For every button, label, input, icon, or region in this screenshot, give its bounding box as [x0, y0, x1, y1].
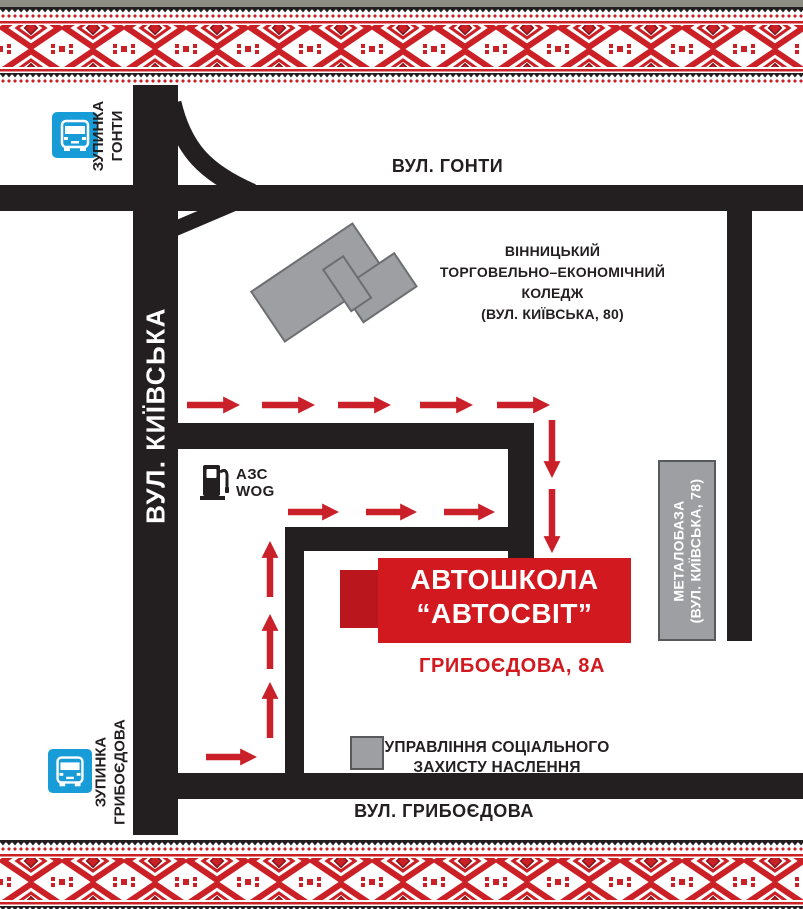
college-label-line: ТОРГОВЕЛЬНО–ЕКОНОМІЧНИЙ	[400, 262, 705, 283]
street-label-honty: ВУЛ. ГОНТИ	[340, 156, 555, 177]
college-label-line: (ВУЛ. КИЇВСЬКА, 80)	[400, 304, 705, 325]
gas-pump-icon	[200, 462, 230, 502]
college-label: ВІННИЦЬКИЙ ТОРГОВЕЛЬНО–ЕКОНОМІЧНИЙ КОЛЕД…	[400, 241, 705, 325]
metal-base-label: МЕТАЛОБАЗА (ВУЛ. КИЇВСЬКА, 78)	[667, 460, 707, 641]
bus-stop-label-line: ГРИБОЄДОВА	[111, 685, 130, 860]
road-right-side	[727, 211, 752, 641]
bus-stop-label-hryboiedova: ЗУПИНКА ГРИБОЄДОВА	[90, 685, 132, 860]
road-middle-horizontal	[178, 423, 534, 449]
bus-stop-icon	[48, 749, 92, 793]
embroidery-pattern	[0, 7, 803, 85]
driving-school-name-line: АВТОШКОЛА	[378, 563, 631, 597]
driving-school-address: ГРИБОЄДОВА, 8А	[367, 655, 657, 678]
metal-base-building: МЕТАЛОБАЗА (ВУЛ. КИЇВСЬКА, 78)	[658, 460, 716, 641]
route-map: ВУЛ. ГОНТИ ВУЛ. КИЇВСЬКА ВУЛ. ГРИБОЄДОВА…	[0, 0, 803, 909]
road-block-horizontal	[285, 527, 534, 551]
gas-station-label: АЗС WOG	[236, 466, 275, 500]
bus-stop-label-line: ЗУПИНКА	[92, 685, 111, 860]
social-office-label: УПРАВЛІННЯ СОЦІАЛЬНОГО ЗАХИСТУ НАСЛЕННЯ	[347, 738, 647, 778]
street-label-hryboiedova: ВУЛ. ГРИБОЄДОВА	[344, 801, 544, 822]
bus-icon-background	[48, 749, 92, 793]
gas-station-label-line: WOG	[236, 483, 275, 500]
metal-base-label-line: МЕТАЛОБАЗА	[670, 460, 687, 641]
driving-school-name-line: “АВТОСВІТ”	[378, 597, 631, 631]
embroidery-pattern	[0, 840, 803, 909]
social-office-label-line: ЗАХИСТУ НАСЛЕННЯ	[347, 758, 647, 778]
gas-station-label-line: АЗС	[236, 466, 275, 483]
social-office-label-line: УПРАВЛІННЯ СОЦІАЛЬНОГО	[347, 738, 647, 758]
college-building	[251, 213, 416, 364]
metal-base-label-line: (ВУЛ. КИЇВСЬКА, 78)	[687, 460, 704, 641]
ukrainian-embroidery-border-top	[0, 0, 803, 85]
road-block-vertical	[285, 551, 304, 775]
street-label-kyivska: ВУЛ. КИЇВСЬКА	[135, 286, 178, 546]
driving-school-building-wing	[340, 570, 380, 628]
driving-school-name: АВТОШКОЛА “АВТОСВІТ”	[378, 563, 631, 631]
college-label-line: ВІННИЦЬКИЙ	[400, 241, 705, 262]
ukrainian-embroidery-border-bottom	[0, 840, 803, 909]
college-label-line: КОЛЕДЖ	[400, 283, 705, 304]
photo-edge-strip	[0, 0, 803, 7]
